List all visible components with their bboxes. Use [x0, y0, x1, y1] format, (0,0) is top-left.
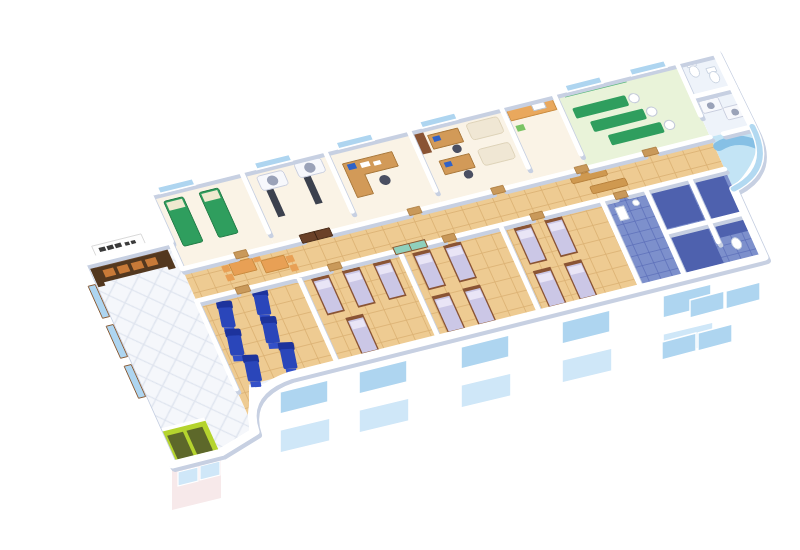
floorplan-svg [0, 0, 800, 550]
recliner-footrest [250, 381, 261, 387]
floorplan-rendering [0, 0, 800, 550]
